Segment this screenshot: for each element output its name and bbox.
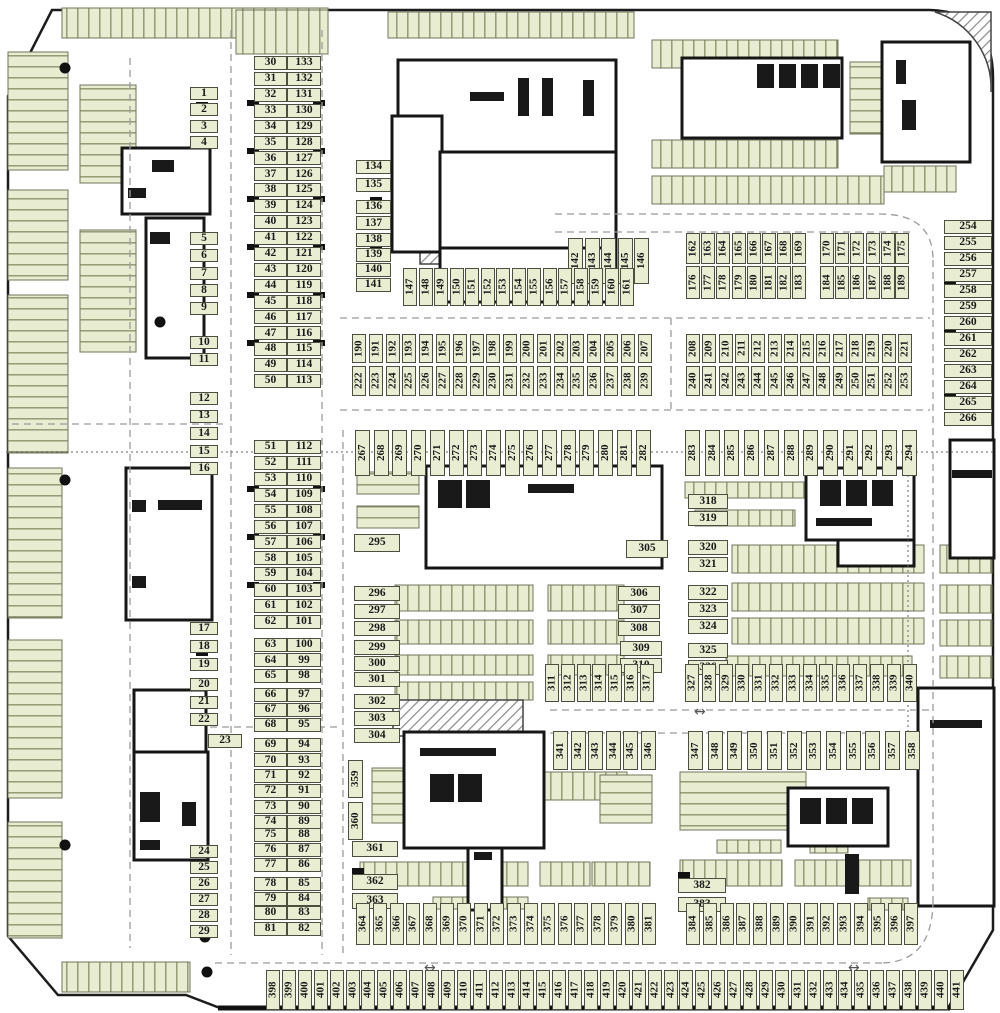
stall-label-108: 108 (287, 504, 321, 518)
stall-label-235: 235 (570, 366, 584, 396)
stall-label-241: 241 (702, 366, 716, 396)
stall-label-201: 201 (537, 334, 551, 363)
stall-label-292: 292 (862, 430, 877, 476)
stall-label-127: 127 (287, 151, 321, 165)
stall-label-52: 52 (254, 456, 287, 470)
stall-label-433: 433 (823, 970, 837, 1010)
stall-label-358: 358 (905, 731, 920, 770)
stall-label-159: 159 (589, 268, 603, 306)
stall-label-371: 371 (474, 903, 488, 945)
stall-label-308: 308 (618, 621, 660, 636)
stall-label-339: 339 (887, 664, 901, 702)
stall-label-412: 412 (489, 970, 503, 1010)
stall-label-436: 436 (870, 970, 884, 1010)
stall-label-299: 299 (354, 640, 400, 655)
stall-label-372: 372 (490, 903, 504, 945)
stall-label-139: 139 (356, 248, 391, 262)
stall-label-133: 133 (287, 56, 321, 70)
stall-label-199: 199 (503, 334, 517, 363)
stall-label-99: 99 (287, 653, 321, 667)
stall-label-138: 138 (356, 233, 391, 247)
stall-label-263: 263 (944, 364, 992, 378)
stall-label-218: 218 (849, 334, 863, 363)
stall-label-387: 387 (736, 903, 750, 945)
stall-label-101: 101 (287, 615, 321, 629)
stall-label-75: 75 (254, 828, 287, 842)
stall-label-117: 117 (287, 310, 321, 324)
stall-label-70: 70 (254, 753, 287, 767)
stall-label-424: 424 (679, 970, 693, 1010)
stall-label-378: 378 (591, 903, 605, 945)
stall-label-427: 427 (727, 970, 741, 1010)
stall-label-81: 81 (254, 922, 287, 936)
stall-label-134: 134 (356, 160, 391, 174)
stall-label-379: 379 (608, 903, 622, 945)
stall-label-319: 319 (688, 511, 728, 526)
stall-label-200: 200 (520, 334, 534, 363)
stall-label-415: 415 (536, 970, 550, 1010)
stall-label-267: 267 (355, 430, 370, 476)
stall-label-366: 366 (390, 903, 404, 945)
stall-label-252: 252 (882, 366, 896, 396)
stall-label-385: 385 (703, 903, 717, 945)
stall-label-146: 146 (634, 238, 649, 284)
stall-label-195: 195 (436, 334, 450, 363)
stall-label-254: 254 (944, 220, 992, 234)
stall-label-330: 330 (735, 664, 749, 702)
stall-label-257: 257 (944, 268, 992, 282)
stall-label-8: 8 (190, 284, 218, 297)
stall-label-224: 224 (386, 366, 400, 396)
stall-label-431: 431 (791, 970, 805, 1010)
stall-label-261: 261 (944, 332, 992, 346)
stall-label-374: 374 (524, 903, 538, 945)
stall-label-421: 421 (632, 970, 646, 1010)
stall-label-280: 280 (598, 430, 613, 476)
stall-label-122: 122 (287, 231, 321, 245)
stall-label-2: 2 (190, 103, 218, 116)
stall-label-42: 42 (254, 247, 287, 261)
stall-label-338: 338 (870, 664, 884, 702)
stall-label-191: 191 (369, 334, 383, 363)
stall-label-188: 188 (881, 266, 895, 299)
stall-label-343: 343 (588, 731, 603, 770)
stall-label-272: 272 (449, 430, 464, 476)
stall-label-132: 132 (287, 72, 321, 86)
stall-label-118: 118 (287, 295, 321, 309)
stall-label-399: 399 (282, 970, 296, 1010)
stall-label-174: 174 (881, 233, 895, 264)
stall-label-271: 271 (430, 430, 445, 476)
stall-label-221: 221 (898, 334, 912, 363)
stall-label-276: 276 (523, 430, 538, 476)
stall-label-198: 198 (486, 334, 500, 363)
stall-label-54: 54 (254, 488, 287, 502)
stall-label-95: 95 (287, 718, 321, 732)
stall-label-245: 245 (768, 366, 782, 396)
stall-label-156: 156 (543, 268, 557, 306)
stall-label-34: 34 (254, 120, 287, 134)
stall-label-408: 408 (425, 970, 439, 1010)
stall-label-357: 357 (885, 731, 900, 770)
stall-label-97: 97 (287, 688, 321, 702)
stall-label-331: 331 (752, 664, 766, 702)
stall-label-119: 119 (287, 279, 321, 293)
stall-label-185: 185 (835, 266, 849, 299)
stall-label-364: 364 (356, 903, 370, 945)
stall-label-59: 59 (254, 567, 287, 581)
stall-label-313: 313 (577, 664, 591, 702)
stall-label-63: 63 (254, 638, 287, 652)
stall-label-129: 129 (287, 120, 321, 134)
stall-label-140: 140 (356, 263, 391, 277)
stall-label-189: 189 (895, 266, 909, 299)
stall-label-347: 347 (688, 731, 703, 770)
stall-label-204: 204 (587, 334, 601, 363)
stall-label-26: 26 (190, 877, 218, 890)
stall-label-39: 39 (254, 199, 287, 213)
stall-label-175: 175 (895, 233, 909, 264)
stall-label-258: 258 (944, 284, 992, 298)
stall-label-414: 414 (520, 970, 534, 1010)
stall-label-177: 177 (701, 266, 715, 299)
stall-label-297: 297 (354, 604, 400, 619)
stall-label-20: 20 (190, 678, 218, 691)
stall-label-273: 273 (467, 430, 482, 476)
stall-label-181: 181 (762, 266, 776, 299)
stall-label-121: 121 (287, 247, 321, 261)
stall-label-441: 441 (950, 970, 964, 1010)
stall-label-416: 416 (552, 970, 566, 1010)
stall-label-126: 126 (287, 167, 321, 181)
stall-label-281: 281 (617, 430, 632, 476)
stall-label-212: 212 (751, 334, 765, 363)
stall-label-109: 109 (287, 488, 321, 502)
stall-label-147: 147 (403, 268, 417, 306)
stall-label-66: 66 (254, 688, 287, 702)
stall-label-390: 390 (787, 903, 801, 945)
stall-label-225: 225 (402, 366, 416, 396)
stall-label-283: 283 (685, 430, 700, 476)
stall-label-293: 293 (882, 430, 897, 476)
stall-label-186: 186 (850, 266, 864, 299)
stall-label-141: 141 (356, 278, 391, 292)
stall-label-35: 35 (254, 136, 287, 150)
stall-label-158: 158 (574, 268, 588, 306)
stall-label-302: 302 (354, 694, 400, 709)
stall-label-113: 113 (287, 374, 321, 388)
stall-label-353: 353 (806, 731, 821, 770)
stall-label-123: 123 (287, 215, 321, 229)
stall-label-217: 217 (833, 334, 847, 363)
stall-label-391: 391 (804, 903, 818, 945)
stall-label-296: 296 (354, 586, 400, 601)
stall-label-203: 203 (570, 334, 584, 363)
stall-label-270: 270 (411, 430, 426, 476)
stall-label-65: 65 (254, 669, 287, 683)
stall-label-196: 196 (453, 334, 467, 363)
stall-label-83: 83 (287, 906, 321, 920)
stall-label-236: 236 (587, 366, 601, 396)
stall-label-180: 180 (747, 266, 761, 299)
stall-label-27: 27 (190, 893, 218, 906)
stall-label-394: 394 (854, 903, 868, 945)
stall-label-51: 51 (254, 440, 287, 454)
stall-label-130: 130 (287, 104, 321, 118)
stall-label-131: 131 (287, 88, 321, 102)
stall-label-406: 406 (393, 970, 407, 1010)
stall-label-149: 149 (434, 268, 448, 306)
stall-label-425: 425 (695, 970, 709, 1010)
stall-label-57: 57 (254, 535, 287, 549)
stall-label-298: 298 (354, 621, 400, 636)
stall-label-155: 155 (527, 268, 541, 306)
stall-label-274: 274 (486, 430, 501, 476)
stall-label-150: 150 (450, 268, 464, 306)
stall-label-322: 322 (688, 585, 728, 600)
stall-label-388: 388 (753, 903, 767, 945)
stall-label-124: 124 (287, 199, 321, 213)
stall-label-359: 359 (348, 760, 363, 798)
stall-label-226: 226 (419, 366, 433, 396)
stall-label-3: 3 (190, 120, 218, 133)
stall-label-94: 94 (287, 738, 321, 752)
stall-label-190: 190 (352, 334, 366, 363)
stall-label-255: 255 (944, 236, 992, 250)
stall-label-11: 11 (190, 353, 218, 366)
stall-label-151: 151 (465, 268, 479, 306)
stall-label-286: 286 (744, 430, 759, 476)
stall-label-334: 334 (803, 664, 817, 702)
stall-label-112: 112 (287, 440, 321, 454)
stall-label-230: 230 (486, 366, 500, 396)
stall-label-102: 102 (287, 599, 321, 613)
stall-label-309: 309 (620, 641, 662, 656)
stall-label-336: 336 (836, 664, 850, 702)
stall-label-58: 58 (254, 551, 287, 565)
stall-label-368: 368 (423, 903, 437, 945)
stall-label-395: 395 (871, 903, 885, 945)
floor-plan: ↔ ↔ ↔ 1234567891011121314151617181920212… (0, 0, 1000, 1013)
stall-label-242: 242 (719, 366, 733, 396)
stall-label-93: 93 (287, 753, 321, 767)
stall-label-5: 5 (190, 232, 218, 245)
stall-label-396: 396 (888, 903, 902, 945)
stall-label-220: 220 (882, 334, 896, 363)
stall-label-32: 32 (254, 88, 287, 102)
stall-label-303: 303 (354, 711, 400, 726)
stall-label-269: 269 (392, 430, 407, 476)
stall-label-9: 9 (190, 302, 218, 315)
stall-label-249: 249 (833, 366, 847, 396)
stall-label-232: 232 (520, 366, 534, 396)
stall-label-291: 291 (843, 430, 858, 476)
stall-label-184: 184 (820, 266, 834, 299)
stall-label-111: 111 (287, 456, 321, 470)
stall-label-304: 304 (354, 728, 400, 743)
stall-label-56: 56 (254, 520, 287, 534)
stall-label-417: 417 (568, 970, 582, 1010)
stall-label-135: 135 (356, 178, 391, 192)
stall-label-12: 12 (190, 392, 218, 405)
stall-label-15: 15 (190, 445, 218, 458)
stall-label-413: 413 (505, 970, 519, 1010)
stall-label-162: 162 (686, 233, 700, 264)
stall-label-324: 324 (688, 619, 728, 634)
stall-label-345: 345 (623, 731, 638, 770)
stall-label-80: 80 (254, 906, 287, 920)
stall-label-392: 392 (820, 903, 834, 945)
stall-label-318: 318 (688, 494, 728, 509)
stall-label-233: 233 (537, 366, 551, 396)
stall-label-248: 248 (816, 366, 830, 396)
stall-label-423: 423 (664, 970, 678, 1010)
stall-label-329: 329 (719, 664, 733, 702)
stall-label-268: 268 (374, 430, 389, 476)
stall-label-375: 375 (541, 903, 555, 945)
stall-label-229: 229 (470, 366, 484, 396)
stall-label-344: 344 (606, 731, 621, 770)
stall-label-397: 397 (904, 903, 918, 945)
stall-label-76: 76 (254, 843, 287, 857)
stall-label-362: 362 (352, 874, 398, 890)
stall-label-115: 115 (287, 342, 321, 356)
stall-label-48: 48 (254, 342, 287, 356)
stall-label-178: 178 (716, 266, 730, 299)
stall-label-266: 266 (944, 412, 992, 426)
stall-label-173: 173 (866, 233, 880, 264)
stall-label-435: 435 (854, 970, 868, 1010)
stall-label-38: 38 (254, 183, 287, 197)
stall-label-411: 411 (473, 970, 487, 1010)
stall-label-277: 277 (542, 430, 557, 476)
stall-label-240: 240 (686, 366, 700, 396)
stall-label-403: 403 (346, 970, 360, 1010)
stall-label-295: 295 (354, 534, 400, 552)
stall-label-432: 432 (807, 970, 821, 1010)
stall-label-355: 355 (846, 731, 861, 770)
stall-label-46: 46 (254, 310, 287, 324)
stall-label-4: 4 (190, 136, 218, 149)
stall-label-350: 350 (747, 731, 762, 770)
stall-label-340: 340 (903, 664, 917, 702)
stall-label-294: 294 (902, 430, 917, 476)
stall-label-18: 18 (190, 640, 218, 653)
stall-label-409: 409 (441, 970, 455, 1010)
stall-label-78: 78 (254, 877, 287, 891)
stall-label-206: 206 (621, 334, 635, 363)
stall-label-205: 205 (604, 334, 618, 363)
stall-label-17: 17 (190, 622, 218, 635)
stall-label-265: 265 (944, 396, 992, 410)
stall-label-370: 370 (457, 903, 471, 945)
stall-label-401: 401 (314, 970, 328, 1010)
stall-label-25: 25 (190, 861, 218, 874)
stall-label-163: 163 (701, 233, 715, 264)
stall-label-352: 352 (787, 731, 802, 770)
stall-label-253: 253 (898, 366, 912, 396)
stall-label-234: 234 (554, 366, 568, 396)
stall-label-120: 120 (287, 263, 321, 277)
stall-label-33: 33 (254, 104, 287, 118)
stall-label-243: 243 (735, 366, 749, 396)
stall-label-354: 354 (826, 731, 841, 770)
stall-label-306: 306 (618, 586, 660, 601)
stall-label-68: 68 (254, 718, 287, 732)
stall-label-307: 307 (618, 604, 660, 619)
stall-label-320: 320 (688, 540, 728, 555)
stall-label-259: 259 (944, 300, 992, 314)
stall-label-21: 21 (190, 696, 218, 709)
stall-label-437: 437 (886, 970, 900, 1010)
stall-label-410: 410 (457, 970, 471, 1010)
stall-label-323: 323 (688, 602, 728, 617)
stall-label-316: 316 (624, 664, 638, 702)
stall-label-202: 202 (554, 334, 568, 363)
stall-label-321: 321 (688, 557, 728, 572)
stall-label-209: 209 (702, 334, 716, 363)
stall-label-79: 79 (254, 892, 287, 906)
stall-label-231: 231 (503, 366, 517, 396)
stall-label-438: 438 (902, 970, 916, 1010)
stall-label-110: 110 (287, 472, 321, 486)
stall-label-335: 335 (819, 664, 833, 702)
stall-label-6: 6 (190, 249, 218, 262)
stall-label-314: 314 (592, 664, 606, 702)
stall-label-160: 160 (605, 268, 619, 306)
stall-label-19: 19 (190, 658, 218, 671)
stall-label-264: 264 (944, 380, 992, 394)
stall-label-244: 244 (751, 366, 765, 396)
stall-label-60: 60 (254, 583, 287, 597)
stall-label-152: 152 (481, 268, 495, 306)
stall-label-24: 24 (190, 845, 218, 858)
stall-label-43: 43 (254, 263, 287, 277)
stall-label-301: 301 (354, 672, 400, 687)
stall-label-305: 305 (626, 540, 668, 558)
stall-label-251: 251 (865, 366, 879, 396)
stall-label-167: 167 (762, 233, 776, 264)
stall-label-16: 16 (190, 462, 218, 475)
stall-label-377: 377 (574, 903, 588, 945)
stall-label-171: 171 (835, 233, 849, 264)
stall-label-285: 285 (724, 430, 739, 476)
stall-label-214: 214 (784, 334, 798, 363)
stall-label-238: 238 (621, 366, 635, 396)
stall-label-116: 116 (287, 326, 321, 340)
stall-label-55: 55 (254, 504, 287, 518)
stall-label-222: 222 (352, 366, 366, 396)
stall-label-47: 47 (254, 326, 287, 340)
stall-label-183: 183 (792, 266, 806, 299)
stall-label-337: 337 (853, 664, 867, 702)
stall-label-10: 10 (190, 336, 218, 349)
stall-label-104: 104 (287, 567, 321, 581)
stall-label-439: 439 (918, 970, 932, 1010)
stall-label-64: 64 (254, 653, 287, 667)
stall-label-418: 418 (584, 970, 598, 1010)
stall-label-40: 40 (254, 215, 287, 229)
stall-label-434: 434 (838, 970, 852, 1010)
stall-label-223: 223 (369, 366, 383, 396)
stall-label-153: 153 (496, 268, 510, 306)
stall-label-98: 98 (287, 669, 321, 683)
stall-label-193: 193 (402, 334, 416, 363)
stall-label-333: 333 (786, 664, 800, 702)
stall-label-106: 106 (287, 535, 321, 549)
stall-label-7: 7 (190, 267, 218, 280)
stall-label-287: 287 (764, 430, 779, 476)
